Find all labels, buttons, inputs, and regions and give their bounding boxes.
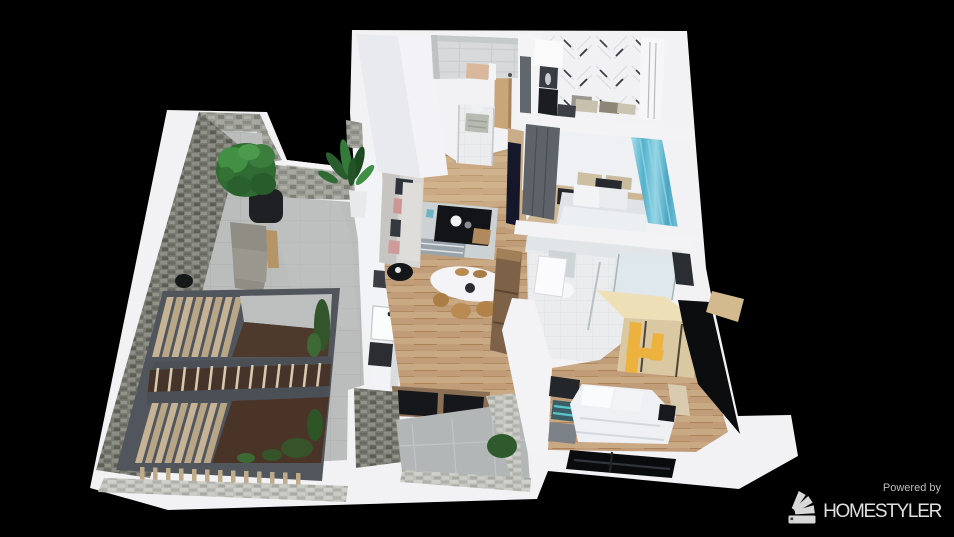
svg-text:HOMESTYLER: HOMESTYLER	[823, 501, 941, 522]
svg-text:Powered by: Powered by	[883, 482, 942, 494]
